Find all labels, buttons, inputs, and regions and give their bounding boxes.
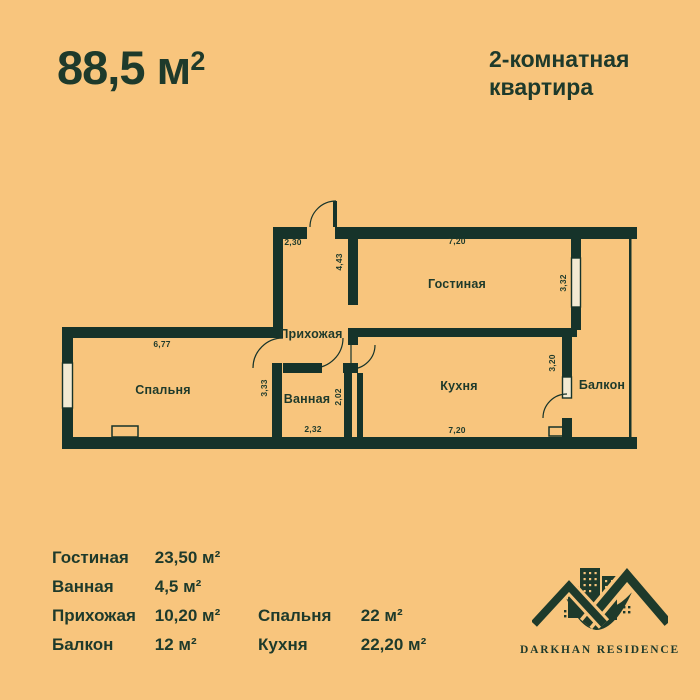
balcony-threshold — [549, 427, 564, 436]
legend-value: 12 м² — [155, 630, 197, 659]
legend-value: 22 м² — [361, 601, 403, 630]
living-window — [572, 258, 581, 307]
wall-shaft — [357, 373, 363, 437]
bedroom-window — [63, 363, 73, 408]
dim-hall-width: 2,30 — [284, 237, 301, 247]
wall-bath-left — [272, 363, 282, 437]
room-label-hall: Прихожая — [279, 327, 342, 341]
room-label-balcony: Балкон — [579, 378, 625, 392]
dim-hall-height: 4,43 — [334, 253, 344, 270]
legend-label: Прихожая — [52, 601, 150, 630]
walls — [62, 201, 637, 449]
wall-living-right-lower — [571, 307, 581, 330]
room-label-kitchen: Кухня — [440, 379, 478, 393]
dim-bath-height2: 2,02 — [333, 388, 343, 405]
legend-row: Спальня 22 м² — [258, 601, 426, 630]
brand-logo: DARKHAN RESIDENCE — [505, 562, 695, 656]
legend-value: 23,50 м² — [155, 543, 221, 572]
wall-living-right-upper — [571, 239, 581, 258]
room-label-living: Гостиная — [428, 277, 486, 291]
wall-bottom — [62, 437, 637, 449]
legend-row: Ванная 4,5 м² — [52, 572, 220, 601]
wall-hall-right — [348, 239, 358, 305]
dim-living-width: 7,20 — [448, 236, 465, 246]
wall-top — [335, 227, 637, 239]
wall-living-kitchen-divider — [348, 328, 577, 337]
entry-door-leaf — [333, 201, 337, 227]
fixtures — [112, 426, 564, 437]
dim-bath-height: 3,33 — [259, 379, 269, 396]
dim-kitchen-width: 7,20 — [448, 425, 465, 435]
radiator — [112, 426, 138, 437]
dim-kitchen-height: 3,20 — [547, 354, 557, 371]
room-label-bath: Ванная — [284, 392, 331, 406]
legend-row: Кухня 22,20 м² — [258, 630, 426, 659]
legend-value: 10,20 м² — [155, 601, 221, 630]
legend-label: Кухня — [258, 630, 356, 659]
entry-door-arc — [310, 201, 336, 227]
brand-logo-icon — [532, 562, 668, 642]
legend-column-2: Спальня 22 м² Кухня 22,20 м² — [258, 601, 426, 659]
room-label-bedroom: Спальня — [135, 383, 190, 397]
wall-bedroom-top — [62, 327, 283, 338]
dim-living-height: 3,32 — [558, 274, 568, 291]
wall-left-upper — [62, 327, 73, 363]
legend-label: Спальня — [258, 601, 356, 630]
poster: 88,5 м2 2-комнатная квартира — [0, 0, 700, 700]
wall-kitchen-right-upper — [562, 330, 572, 377]
dim-bath-width: 2,32 — [304, 424, 321, 434]
legend-value: 22,20 м² — [361, 630, 427, 659]
legend-label: Ванная — [52, 572, 150, 601]
dim-bedroom-width: 6,77 — [153, 339, 170, 349]
legend-label: Балкон — [52, 630, 150, 659]
wall-balcony-right — [629, 239, 632, 437]
legend-label: Гостиная — [52, 543, 150, 572]
brand-logo-text: DARKHAN RESIDENCE — [505, 644, 695, 656]
wall-hall-left — [273, 227, 283, 338]
legend-row: Балкон 12 м² — [52, 630, 220, 659]
wall-bath-right — [344, 373, 352, 437]
balcony-window — [563, 377, 572, 398]
legend-row: Прихожая 10,20 м² — [52, 601, 220, 630]
legend-column-1: Гостиная 23,50 м² Ванная 4,5 м² Прихожая… — [52, 543, 220, 659]
legend-row: Гостиная 23,50 м² — [52, 543, 220, 572]
wall-kitchen-door-stub — [348, 337, 358, 345]
legend-value: 4,5 м² — [155, 572, 202, 601]
